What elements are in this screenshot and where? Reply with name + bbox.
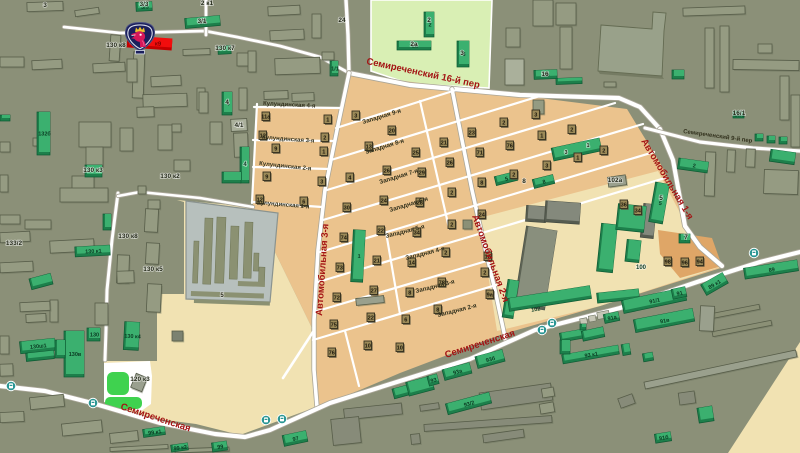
svg-text:29: 29 (419, 171, 425, 177)
svg-text:76: 76 (507, 144, 513, 150)
svg-text:10: 10 (397, 346, 403, 352)
svg-text:133/2: 133/2 (6, 240, 23, 247)
svg-text:7: 7 (684, 234, 688, 241)
svg-text:2: 2 (323, 136, 326, 142)
svg-text:2: 2 (450, 223, 453, 229)
svg-text:91: 91 (676, 290, 683, 297)
svg-text:130 к5: 130 к5 (143, 266, 163, 273)
svg-text:к9: к9 (155, 41, 162, 47)
svg-text:132б: 132б (38, 131, 51, 138)
svg-text:130 к8: 130 к8 (118, 233, 138, 240)
svg-text:9: 9 (265, 175, 268, 181)
svg-text:3: 3 (534, 113, 537, 119)
svg-text:30: 30 (344, 206, 350, 212)
svg-text:2: 2 (450, 191, 453, 197)
svg-text:21: 21 (374, 259, 380, 265)
svg-text:24: 24 (381, 199, 388, 205)
svg-text:16: 16 (541, 71, 549, 78)
svg-text:1: 1 (586, 143, 589, 149)
svg-text:2а: 2а (410, 41, 418, 48)
svg-text:22: 22 (378, 229, 384, 235)
svg-text:6: 6 (404, 318, 407, 324)
svg-text:23: 23 (469, 131, 475, 137)
svg-text:1: 1 (326, 118, 329, 124)
svg-text:3/1: 3/1 (197, 18, 206, 25)
svg-text:4: 4 (225, 99, 229, 106)
svg-text:100: 100 (636, 265, 647, 271)
svg-text:97: 97 (292, 436, 299, 443)
svg-text:14: 14 (409, 261, 416, 267)
svg-text:1/1: 1/1 (331, 67, 339, 73)
svg-text:130 к3: 130 к3 (83, 167, 103, 174)
svg-text:3: 3 (564, 150, 567, 156)
svg-text:26: 26 (384, 169, 390, 175)
svg-text:89: 89 (768, 267, 775, 274)
svg-text:130 к2: 130 к2 (160, 173, 180, 180)
svg-text:102а: 102а (608, 177, 623, 184)
svg-text:5: 5 (659, 195, 663, 202)
svg-text:3: 3 (320, 180, 323, 186)
svg-text:74: 74 (341, 236, 348, 242)
svg-text:3: 3 (460, 50, 464, 57)
svg-text:94: 94 (697, 260, 704, 266)
svg-text:34: 34 (635, 209, 642, 215)
svg-text:120 к3: 120 к3 (130, 376, 150, 383)
svg-text:9: 9 (274, 147, 277, 153)
svg-text:1: 1 (576, 156, 579, 162)
svg-text:73: 73 (337, 266, 343, 272)
svg-text:2: 2 (483, 271, 486, 277)
svg-text:1: 1 (540, 134, 543, 140)
svg-text:96: 96 (682, 261, 688, 267)
svg-text:36: 36 (621, 203, 627, 209)
svg-text:130 к7: 130 к7 (215, 45, 235, 52)
svg-text:4/1: 4/1 (234, 122, 243, 129)
svg-text:99: 99 (217, 444, 224, 451)
svg-text:3: 3 (545, 164, 548, 170)
svg-text:2: 2 (602, 149, 605, 155)
svg-text:1: 1 (357, 254, 360, 260)
svg-text:21: 21 (441, 141, 447, 147)
svg-text:27: 27 (371, 289, 377, 295)
svg-text:2 к1: 2 к1 (201, 0, 214, 7)
svg-text:8: 8 (480, 181, 483, 187)
svg-text:22: 22 (368, 316, 374, 322)
svg-text:130 к4: 130 к4 (124, 334, 142, 341)
svg-text:3: 3 (43, 2, 47, 9)
svg-text:8: 8 (522, 178, 526, 185)
svg-text:71: 71 (477, 151, 483, 157)
svg-text:3/3: 3/3 (139, 1, 148, 8)
svg-text:10: 10 (365, 344, 371, 350)
svg-text:8: 8 (408, 291, 411, 297)
svg-text:1: 1 (322, 150, 325, 156)
svg-text:98: 98 (665, 260, 671, 266)
svg-text:24: 24 (338, 17, 346, 24)
svg-text:11а: 11а (261, 115, 271, 121)
svg-text:76: 76 (329, 351, 335, 357)
svg-text:130 к1: 130 к1 (85, 249, 102, 256)
svg-text:2: 2 (427, 17, 431, 24)
svg-text:3: 3 (354, 114, 357, 120)
svg-text:2: 2 (512, 173, 515, 179)
svg-text:2: 2 (570, 128, 573, 134)
svg-text:130: 130 (90, 333, 99, 339)
svg-text:75: 75 (331, 323, 337, 329)
svg-text:9а: 9а (487, 293, 494, 299)
svg-text:130в: 130в (69, 352, 82, 358)
svg-text:20: 20 (389, 129, 395, 135)
svg-text:26: 26 (447, 161, 453, 167)
svg-text:2: 2 (502, 121, 505, 127)
svg-text:16/1: 16/1 (733, 110, 746, 117)
svg-text:72: 72 (334, 296, 340, 302)
svg-text:130 к8: 130 к8 (106, 42, 126, 49)
svg-text:25: 25 (413, 151, 419, 157)
